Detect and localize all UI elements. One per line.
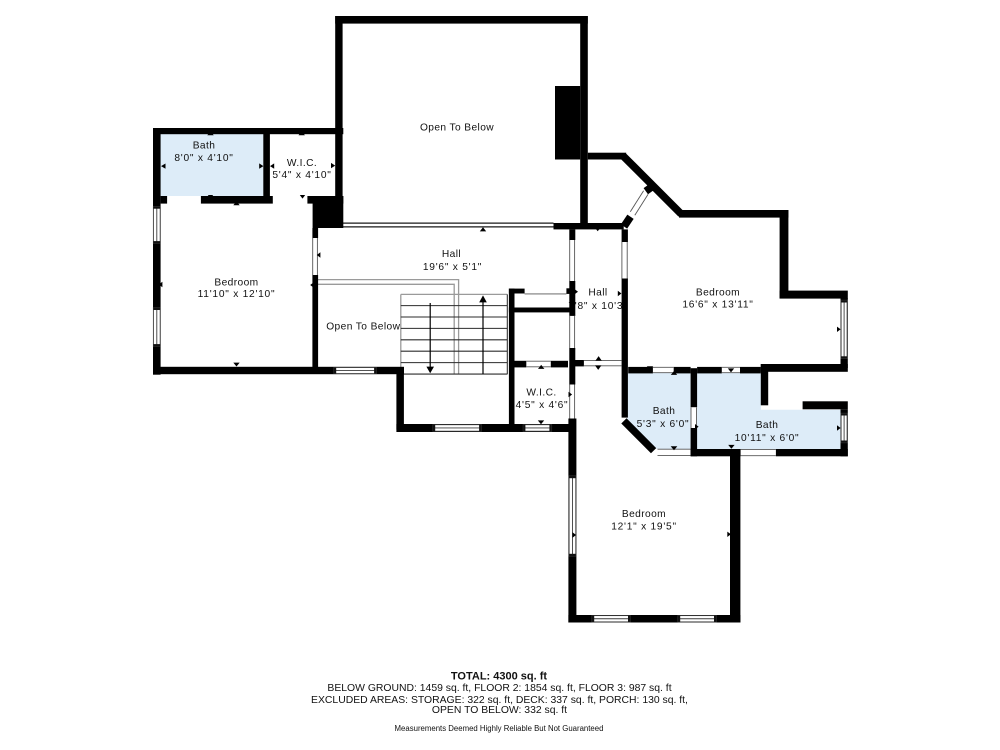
svg-text:Hall: Hall: [442, 249, 461, 260]
svg-text:Hall: Hall: [588, 288, 607, 299]
svg-text:TOTAL: 4300 sq. ft: TOTAL: 4300 sq. ft: [451, 670, 548, 682]
svg-text:11'10" x 12'10": 11'10" x 12'10": [198, 289, 276, 300]
svg-text:5'4" x 4'10": 5'4" x 4'10": [272, 170, 331, 181]
svg-text:OPEN TO BELOW: 332 sq. ft: OPEN TO BELOW: 332 sq. ft: [432, 705, 567, 716]
svg-text:12'1" x 19'5": 12'1" x 19'5": [611, 522, 677, 533]
svg-text:Measurements Deemed Highly Rel: Measurements Deemed Highly Reliable But …: [395, 724, 604, 733]
svg-text:W.I.C.: W.I.C.: [526, 388, 556, 399]
svg-text:Bath: Bath: [193, 141, 216, 152]
svg-text:W.I.C.: W.I.C.: [287, 158, 317, 169]
svg-text:Bedroom: Bedroom: [696, 288, 740, 299]
svg-text:4'5" x 4'6": 4'5" x 4'6": [516, 400, 569, 411]
svg-text:BELOW GROUND: 1459 sq. ft, FLO: BELOW GROUND: 1459 sq. ft, FLOOR 2: 1854…: [327, 683, 671, 694]
svg-text:10'11" x 6'0": 10'11" x 6'0": [735, 433, 800, 444]
svg-text:Bedroom: Bedroom: [622, 509, 666, 520]
svg-text:8'0" x 4'10": 8'0" x 4'10": [174, 153, 233, 164]
svg-text:Bedroom: Bedroom: [214, 277, 258, 288]
svg-text:16'6" x 13'11": 16'6" x 13'11": [682, 300, 753, 311]
svg-text:Open To Below: Open To Below: [326, 322, 400, 333]
svg-text:Bath: Bath: [653, 406, 676, 417]
svg-text:Open To Below: Open To Below: [420, 123, 494, 134]
svg-text:5'3" x 6'0": 5'3" x 6'0": [637, 419, 690, 430]
svg-text:Bath: Bath: [756, 420, 779, 431]
svg-text:19'6" x 5'1": 19'6" x 5'1": [423, 262, 482, 273]
svg-text:7'8" x 10'3": 7'8" x 10'3": [568, 301, 627, 312]
